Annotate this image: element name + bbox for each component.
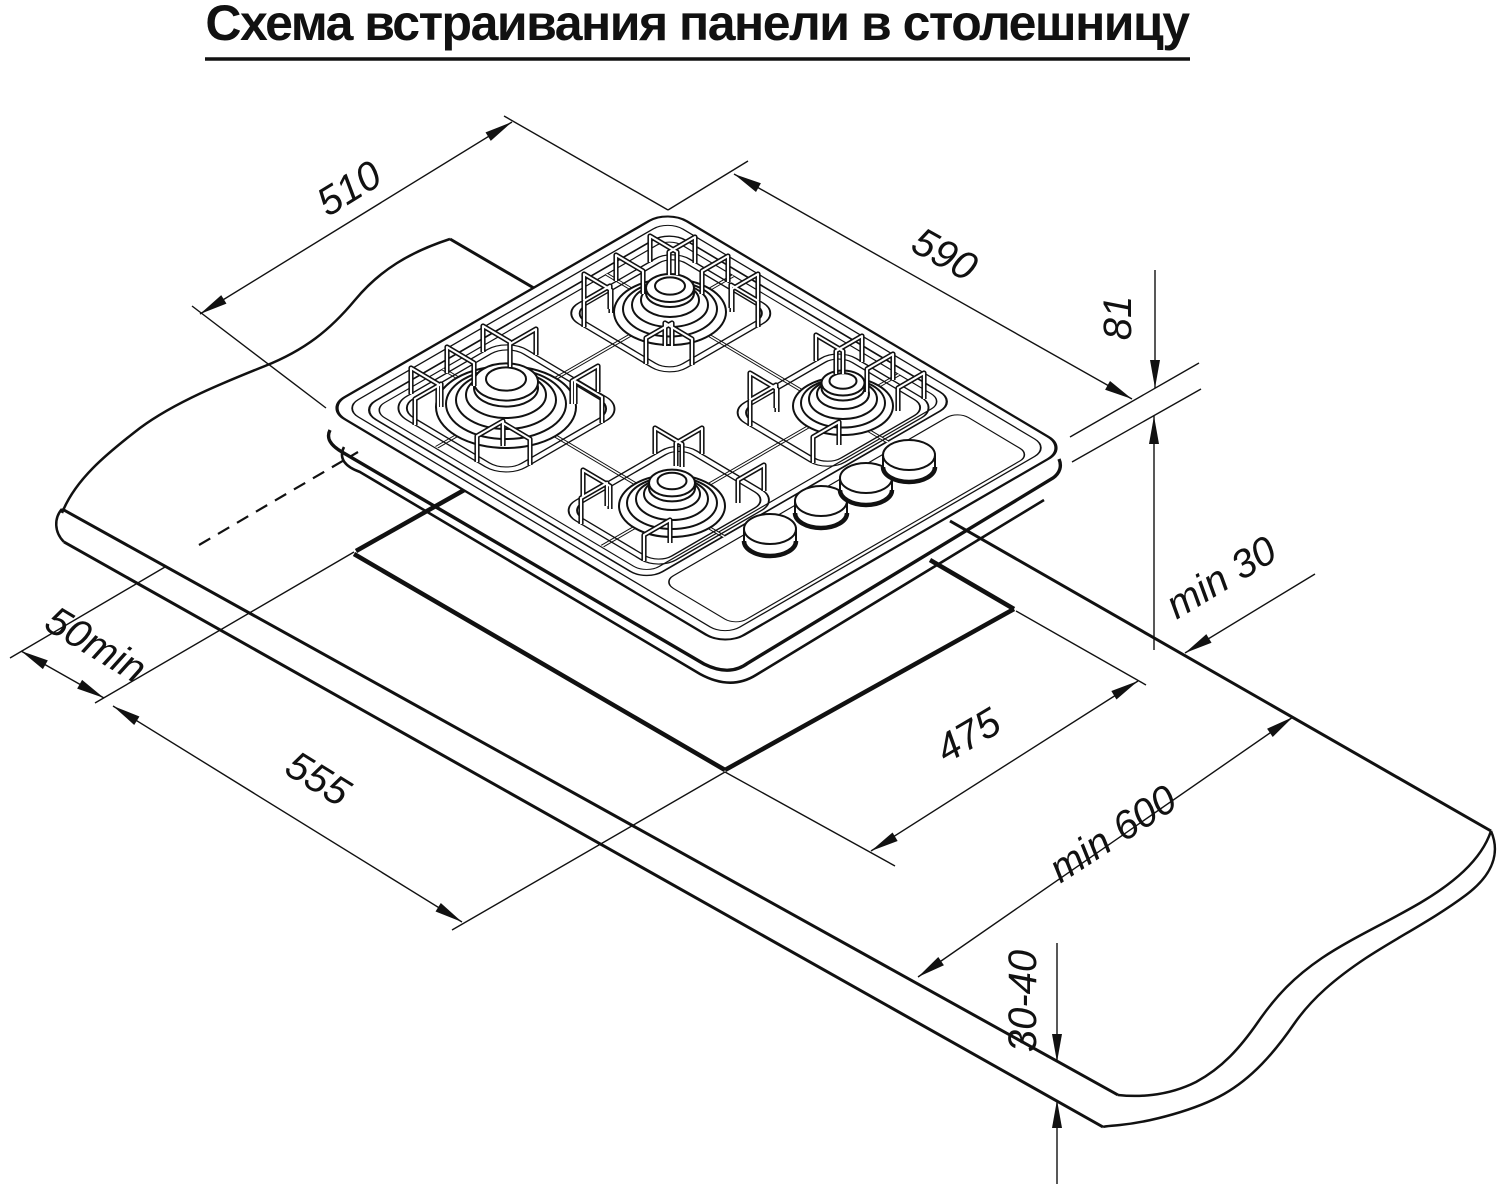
svg-text:Схема встраивания панели в сто: Схема встраивания панели в столешницу	[205, 0, 1190, 51]
svg-text:81: 81	[1096, 296, 1140, 341]
svg-text:30-40: 30-40	[1001, 950, 1045, 1052]
